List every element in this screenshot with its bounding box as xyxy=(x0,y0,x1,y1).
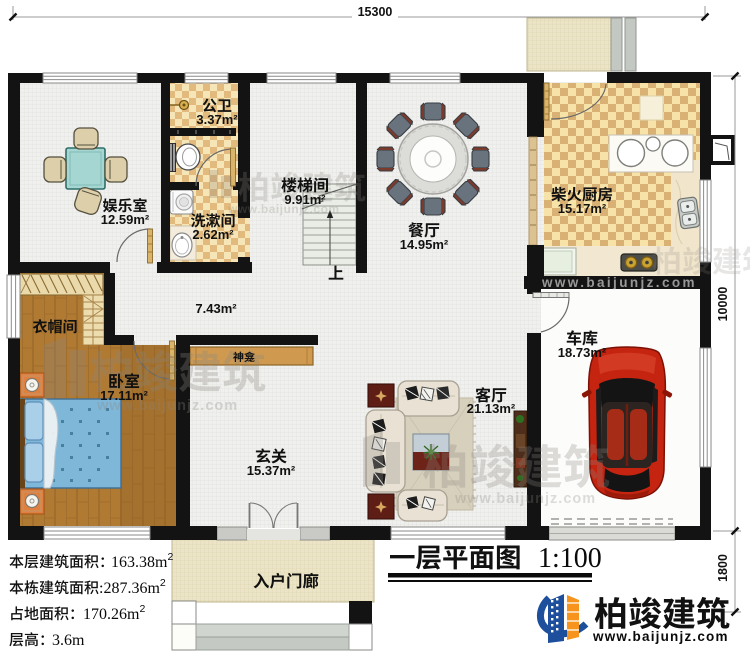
svg-text::287.36m2: :287.36m2 xyxy=(99,577,166,597)
svg-text:17.11m²: 17.11m² xyxy=(100,388,148,403)
svg-text:14.95m²: 14.95m² xyxy=(400,237,449,252)
svg-text:1800: 1800 xyxy=(716,554,730,582)
svg-text:www.baijunjz.com: www.baijunjz.com xyxy=(454,491,596,507)
svg-text:7.43m²: 7.43m² xyxy=(195,301,237,316)
svg-text:www.baijunjz.com: www.baijunjz.com xyxy=(592,629,729,644)
svg-text:15.37m²: 15.37m² xyxy=(247,463,296,478)
svg-text:21.13m²: 21.13m² xyxy=(467,401,516,416)
svg-text:1:100: 1:100 xyxy=(538,543,602,574)
svg-text:18.73m²: 18.73m² xyxy=(558,345,607,360)
svg-text:163.38m2: 163.38m2 xyxy=(111,551,173,571)
svg-text:10000: 10000 xyxy=(716,287,730,322)
svg-text:3.37m²: 3.37m² xyxy=(196,112,238,127)
svg-text:170.26m2: 170.26m2 xyxy=(83,603,145,623)
svg-text:2.62m²: 2.62m² xyxy=(192,227,234,242)
svg-text:www.baijunjz.com: www.baijunjz.com xyxy=(541,275,697,290)
svg-text:15.17m²: 15.17m² xyxy=(558,201,607,216)
svg-text:9.91m²: 9.91m² xyxy=(284,192,326,207)
svg-text:12.59m²: 12.59m² xyxy=(101,212,150,227)
svg-text:3.6m: 3.6m xyxy=(52,632,85,649)
svg-text:15300: 15300 xyxy=(358,5,393,19)
